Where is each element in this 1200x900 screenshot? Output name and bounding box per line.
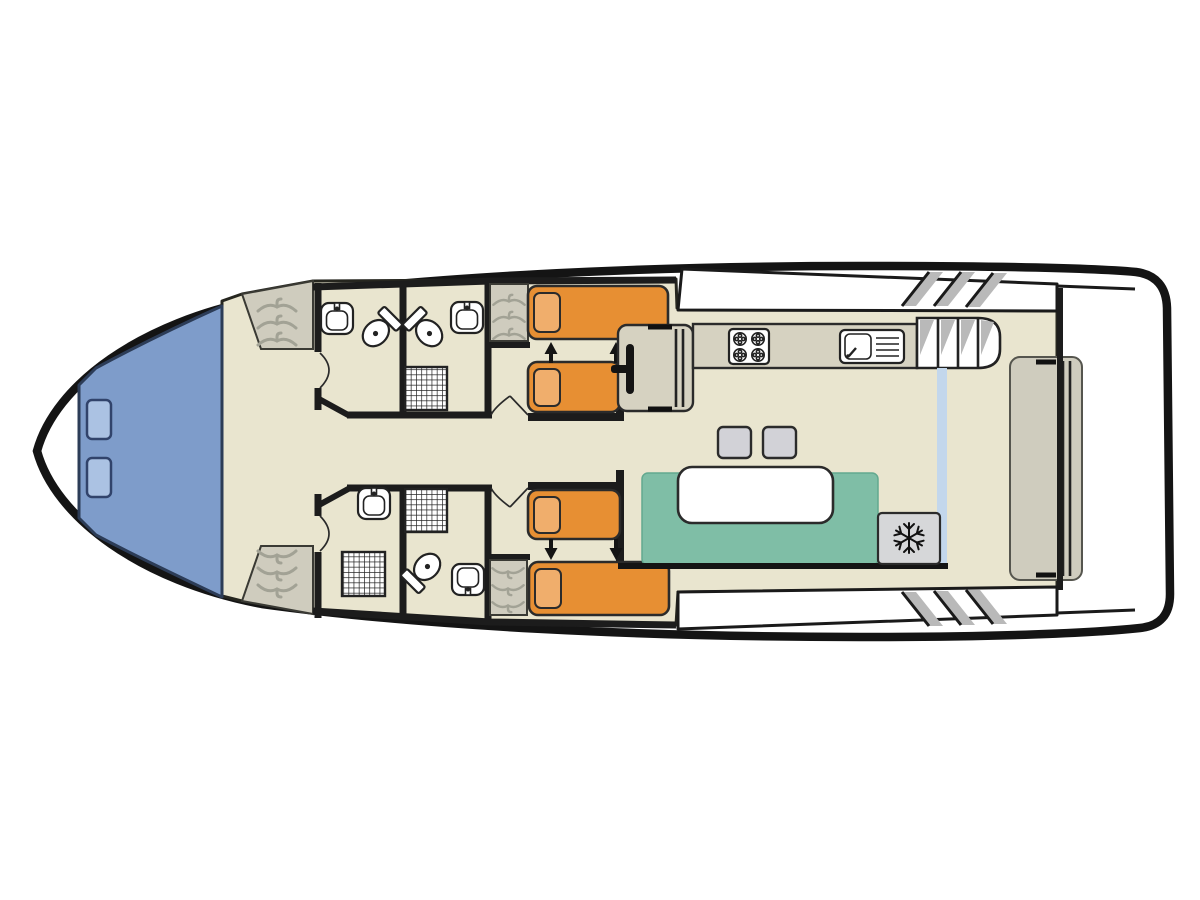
- dresser-cabinet: [611, 325, 693, 411]
- sink-icon: [358, 488, 390, 519]
- stool: [763, 427, 796, 458]
- bed-pillow: [535, 569, 561, 608]
- bow-hatch: [87, 458, 111, 497]
- dining-table: [678, 467, 833, 523]
- bow-deck: [79, 306, 222, 597]
- sink-icon: [321, 303, 353, 334]
- cabin-wardrobe: [490, 560, 527, 615]
- boat-floor-plan: [0, 0, 1200, 900]
- stove-icon: [729, 329, 769, 364]
- shower-icon: [342, 552, 385, 596]
- sink-icon: [452, 564, 484, 595]
- shower-icon: [405, 367, 447, 410]
- galley-sink-icon: [840, 330, 904, 363]
- floor-plan-canvas: [0, 0, 1200, 900]
- stool: [718, 427, 751, 458]
- bed-pillow: [534, 369, 560, 406]
- bow-hatch: [87, 400, 111, 439]
- shower-icon: [405, 489, 447, 532]
- bed-pillow: [534, 497, 560, 533]
- cabin-wardrobe: [490, 284, 528, 341]
- flybridge-stairs: [917, 318, 1000, 368]
- sink-icon: [451, 302, 483, 333]
- galley: [693, 324, 917, 368]
- bed-pillow: [534, 293, 560, 332]
- freezer: [878, 513, 940, 564]
